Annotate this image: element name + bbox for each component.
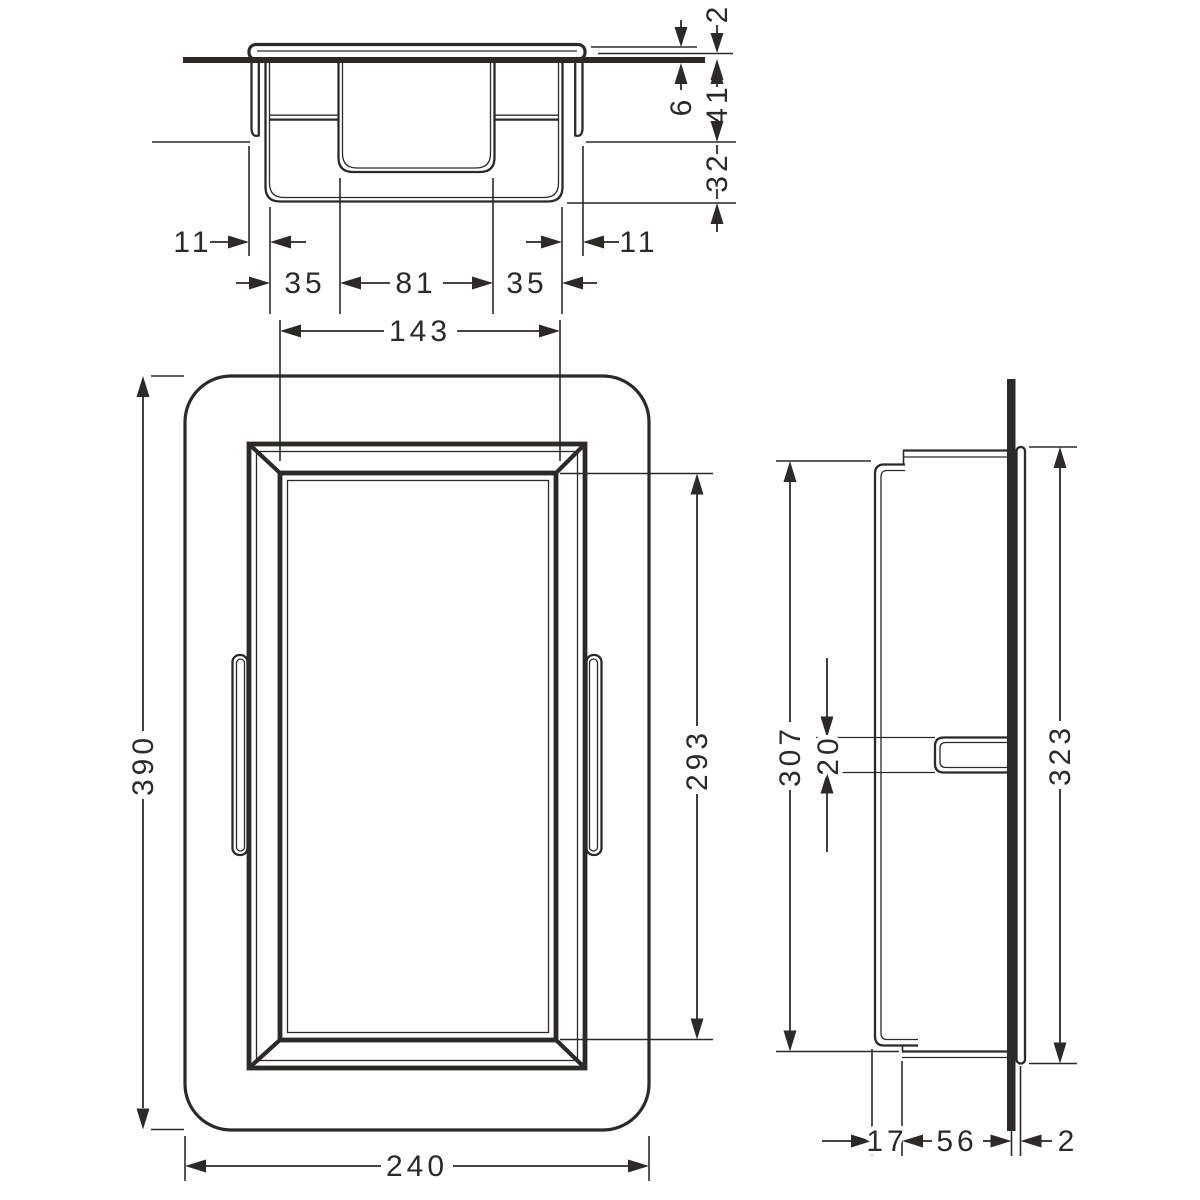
dim-label-tile-thickness: 6 [665, 96, 698, 117]
dim-recess-widths: 35 81 35 [236, 267, 597, 300]
flange-edge [1017, 447, 1026, 1064]
dim-collar-depth: 41 [152, 63, 736, 142]
side-ledge-right [495, 115, 559, 119]
dim-label-flange-height: 323 [1044, 724, 1077, 786]
dim-label-opening-width: 143 [389, 315, 451, 348]
dim-label-flange-protrusion: 2 [701, 3, 734, 24]
center-recess [339, 63, 495, 172]
dim-label-collar-depth: 41 [701, 83, 734, 124]
dim-label-clip-height: 20 [812, 734, 845, 775]
niche-frame [249, 444, 585, 1068]
dim-label-frame-inner-height: 307 [774, 725, 807, 787]
housing-body-outline [185, 376, 649, 1130]
dim-label-flange-thickness: 2 [1058, 1125, 1079, 1158]
dim-label-recess-side-left: 35 [284, 267, 325, 300]
dim-label-recess-side-right: 35 [506, 267, 547, 300]
dim-label-rear-depth: 17 [866, 1125, 907, 1158]
dim-flange-height: 323 [1029, 447, 1077, 1064]
dim-label-install-depth: 56 [936, 1125, 977, 1158]
top-section-view: 2 6 41 32 [152, 3, 736, 314]
dim-label-rear-step-depth: 32 [701, 151, 734, 192]
tile-wall-line-side [1007, 379, 1016, 1131]
dim-label-body-width: 240 [386, 1150, 448, 1183]
side-view: 307 20 323 1 [774, 379, 1078, 1158]
dim-label-recess-center: 81 [395, 267, 436, 300]
front-view: 143 390 293 240 [127, 315, 714, 1183]
dim-opening-width: 143 [280, 315, 560, 461]
mounting-clip [935, 738, 1007, 773]
housing-box [266, 63, 563, 202]
dim-body-width: 240 [185, 1136, 649, 1183]
side-ledge-left [270, 115, 339, 119]
anchor-tab-left [233, 655, 248, 855]
dim-body-height: 390 [127, 376, 184, 1130]
dim-overhang-left: 11 [173, 226, 306, 259]
collar-left [252, 63, 259, 136]
tile-wall-line [183, 47, 733, 63]
dim-label-overhang-left: 11 [173, 226, 212, 259]
niche-dimension-drawing: 2 6 41 32 [0, 0, 1200, 1200]
dim-label-opening-height: 293 [681, 729, 714, 791]
housing-body-side [875, 451, 1007, 1058]
dim-label-body-height: 390 [127, 734, 160, 796]
dim-clip-height: 20 [812, 658, 935, 852]
dim-depth-row: 17 56 2 [822, 1049, 1078, 1158]
collar-right [575, 63, 582, 136]
niche-opening [280, 473, 556, 1040]
dim-overhang-right: 11 [526, 226, 659, 259]
technical-drawing-page: 2 6 41 32 [0, 0, 1200, 1200]
anchor-tab-right [587, 655, 602, 855]
dim-rear-step-depth: 32 [567, 145, 736, 232]
dim-tile-thickness: 6 [665, 20, 698, 116]
dim-label-overhang-right: 11 [619, 226, 658, 259]
